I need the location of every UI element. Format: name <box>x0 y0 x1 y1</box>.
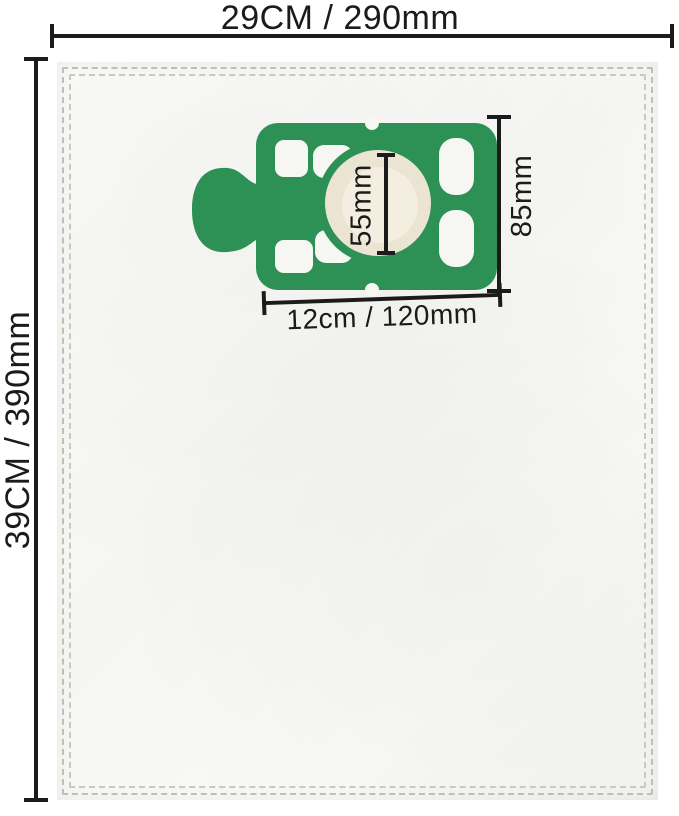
plate-notch-top <box>365 116 379 130</box>
plate-height-label: 85mm <box>508 131 538 261</box>
hole-diameter-arrow <box>384 153 388 255</box>
bag-height-label: 39CM / 390mm <box>1 260 35 600</box>
plate-height-arrow <box>497 115 501 293</box>
plate-pull-tab <box>192 168 256 252</box>
bag-width-arrow <box>50 34 674 38</box>
plate-cutout-top-left <box>275 140 308 177</box>
plate-cutout-top-right <box>439 138 474 195</box>
bag-width-label: 29CM / 290mm <box>20 1 660 35</box>
hole-diameter-label: 55mm <box>348 143 377 269</box>
plate-notch-bottom <box>365 283 379 297</box>
plate-cutout-bottom-left <box>275 240 313 273</box>
product-dimension-diagram: 29CM / 290mm 39CM / 390mm 55mm 85mm 12cm… <box>0 0 679 816</box>
bag-height-arrow <box>34 57 38 802</box>
plate-cutout-bottom-right <box>439 210 474 267</box>
